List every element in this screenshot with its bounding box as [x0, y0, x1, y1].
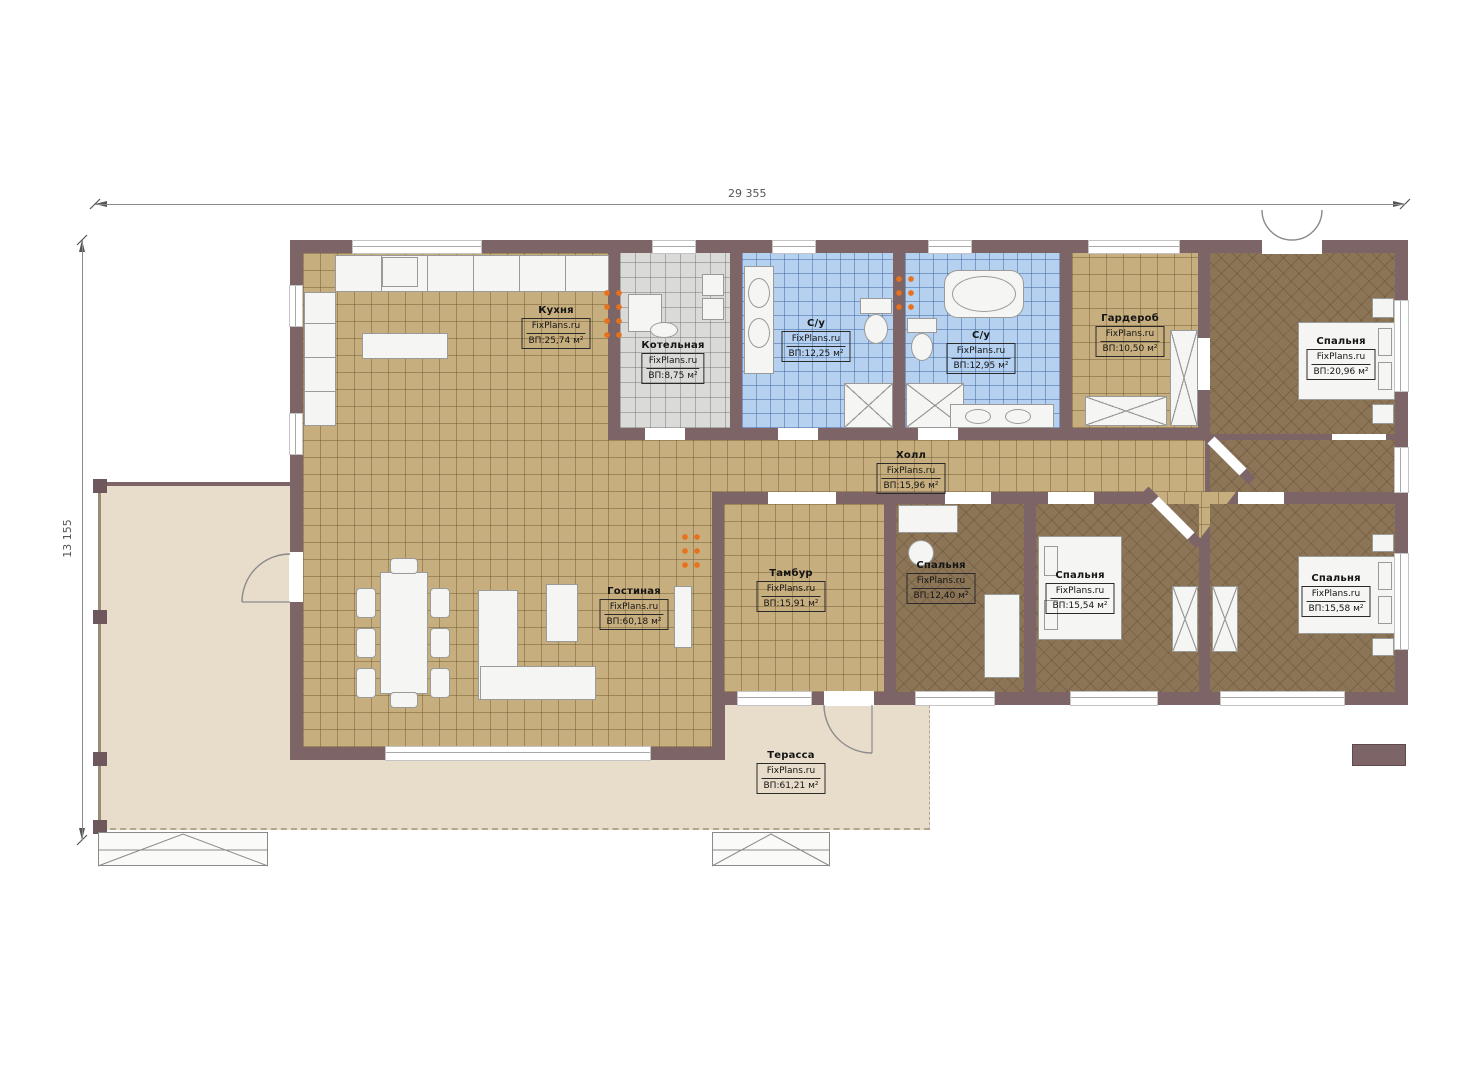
room-label-tambour: ТамбурFixPlans.ruВП:15,91 м² — [757, 568, 826, 612]
room-area: ВП:15,58 м² — [1307, 602, 1366, 616]
room-info-box: FixPlans.ruВП:12,95 м² — [947, 343, 1016, 374]
room-label-living: ГостинаяFixPlans.ruВП:60,18 м² — [600, 586, 669, 630]
room-label-boiler: КотельнаяFixPlans.ruВП:8,75 м² — [641, 340, 704, 384]
room-label-bathroom-2: С/уFixPlans.ruВП:12,95 м² — [947, 330, 1016, 374]
watermark: FixPlans.ru — [527, 319, 586, 334]
room-name: Спальня — [1302, 573, 1371, 584]
room-label-bedroom-4: СпальняFixPlans.ruВП:15,58 м² — [1302, 573, 1371, 617]
room-area: ВП:25,74 м² — [527, 334, 586, 348]
dimension-line-left — [82, 240, 83, 840]
room-name: Холл — [877, 450, 946, 461]
room-area: ВП:15,54 м² — [1051, 599, 1110, 613]
room-name: Кухня — [522, 305, 591, 316]
room-info-box: FixPlans.ruВП:60,18 м² — [600, 599, 669, 630]
room-name: Тамбур — [757, 568, 826, 579]
room-info-box: FixPlans.ruВП:12,25 м² — [782, 331, 851, 362]
room-name: Спальня — [1046, 570, 1115, 581]
room-info-box: FixPlans.ruВП:15,91 м² — [757, 581, 826, 612]
floor-plan-canvas: 29 355 13 155 — [0, 0, 1474, 1080]
room-name: Гостиная — [600, 586, 669, 597]
room-area: ВП:15,91 м² — [762, 597, 821, 611]
room-name: Спальня — [907, 560, 976, 571]
room-area: ВП:60,18 м² — [605, 615, 664, 629]
room-info-box: FixPlans.ruВП:15,96 м² — [877, 463, 946, 494]
room-info-box: FixPlans.ruВП:12,40 м² — [907, 573, 976, 604]
room-info-box: FixPlans.ruВП:20,96 м² — [1307, 349, 1376, 380]
dimension-width-label: 29 355 — [728, 187, 767, 200]
watermark: FixPlans.ru — [646, 354, 699, 369]
watermark: FixPlans.ru — [1312, 350, 1371, 365]
room-area: ВП:61,21 м² — [762, 779, 821, 793]
room-area: ВП:12,40 м² — [912, 589, 971, 603]
watermark: FixPlans.ru — [762, 582, 821, 597]
watermark: FixPlans.ru — [1307, 587, 1366, 602]
room-info-box: FixPlans.ruВП:15,58 м² — [1302, 586, 1371, 617]
room-name: Гардероб — [1096, 313, 1165, 324]
room-label-bathroom-1: С/уFixPlans.ruВП:12,25 м² — [782, 318, 851, 362]
watermark: FixPlans.ru — [605, 600, 664, 615]
room-label-kitchen: КухняFixPlans.ruВП:25,74 м² — [522, 305, 591, 349]
room-name: Спальня — [1307, 336, 1376, 347]
room-area: ВП:12,25 м² — [787, 347, 846, 361]
watermark: FixPlans.ru — [952, 344, 1011, 359]
dimension-line-top — [95, 204, 1405, 205]
room-area: ВП:8,75 м² — [646, 369, 699, 383]
room-label-bedroom-1: СпальняFixPlans.ruВП:20,96 м² — [1307, 336, 1376, 380]
room-name: Терасса — [757, 750, 826, 761]
room-area: ВП:12,95 м² — [952, 359, 1011, 373]
watermark: FixPlans.ru — [787, 332, 846, 347]
room-name: С/у — [947, 330, 1016, 341]
room-label-wardrobe: ГардеробFixPlans.ruВП:10,50 м² — [1096, 313, 1165, 357]
room-info-box: FixPlans.ruВП:15,54 м² — [1046, 583, 1115, 614]
room-info-box: FixPlans.ruВП:61,21 м² — [757, 763, 826, 794]
room-area: ВП:10,50 м² — [1101, 342, 1160, 356]
watermark: FixPlans.ru — [882, 464, 941, 479]
watermark: FixPlans.ru — [762, 764, 821, 779]
room-label-bedroom-2: СпальняFixPlans.ruВП:12,40 м² — [907, 560, 976, 604]
watermark: FixPlans.ru — [912, 574, 971, 589]
room-area: ВП:20,96 м² — [1312, 365, 1371, 379]
room-label-bedroom-3: СпальняFixPlans.ruВП:15,54 м² — [1046, 570, 1115, 614]
room-name: Котельная — [641, 340, 704, 351]
room-name: С/у — [782, 318, 851, 329]
room-info-box: FixPlans.ruВП:25,74 м² — [522, 318, 591, 349]
watermark: FixPlans.ru — [1051, 584, 1110, 599]
room-labels-layer: КухняFixPlans.ruВП:25,74 м²КотельнаяFixP… — [0, 0, 1474, 1080]
room-label-hall: ХоллFixPlans.ruВП:15,96 м² — [877, 450, 946, 494]
dimension-height-label: 13 155 — [61, 519, 74, 558]
room-label-terrace: ТерассаFixPlans.ruВП:61,21 м² — [757, 750, 826, 794]
room-area: ВП:15,96 м² — [882, 479, 941, 493]
watermark: FixPlans.ru — [1101, 327, 1160, 342]
room-info-box: FixPlans.ruВП:10,50 м² — [1096, 326, 1165, 357]
room-info-box: FixPlans.ruВП:8,75 м² — [641, 353, 704, 384]
